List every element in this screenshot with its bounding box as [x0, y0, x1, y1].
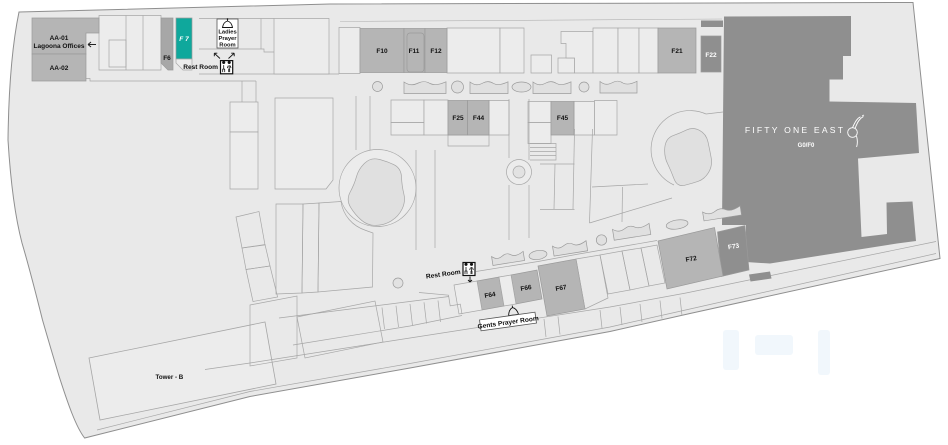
svg-text:F6: F6 — [163, 55, 171, 62]
svg-text:F 7: F 7 — [179, 36, 189, 43]
svg-text:F21: F21 — [671, 48, 683, 55]
svg-text:Rest Room: Rest Room — [183, 64, 218, 71]
svg-text:Room: Room — [219, 43, 235, 49]
svg-text:AA-01: AA-01 — [50, 35, 69, 42]
svg-text:F45: F45 — [557, 115, 569, 122]
svg-text:Prayer: Prayer — [218, 36, 237, 42]
svg-text:F11: F11 — [409, 48, 420, 55]
svg-text:F12: F12 — [430, 48, 442, 55]
svg-text:Tower - B: Tower - B — [156, 374, 184, 381]
svg-text:AA-02: AA-02 — [50, 65, 69, 72]
svg-text:Ladies: Ladies — [218, 30, 236, 36]
svg-text:F10: F10 — [376, 48, 388, 55]
svg-text:F22: F22 — [705, 52, 717, 59]
svg-text:F25: F25 — [452, 115, 464, 122]
svg-text:F44: F44 — [473, 115, 485, 122]
svg-text:Lagoona Offices: Lagoona Offices — [34, 43, 85, 50]
svg-text:FIFTY ONE EAST: FIFTY ONE EAST — [745, 125, 845, 135]
svg-text:G0/F0: G0/F0 — [798, 143, 815, 149]
